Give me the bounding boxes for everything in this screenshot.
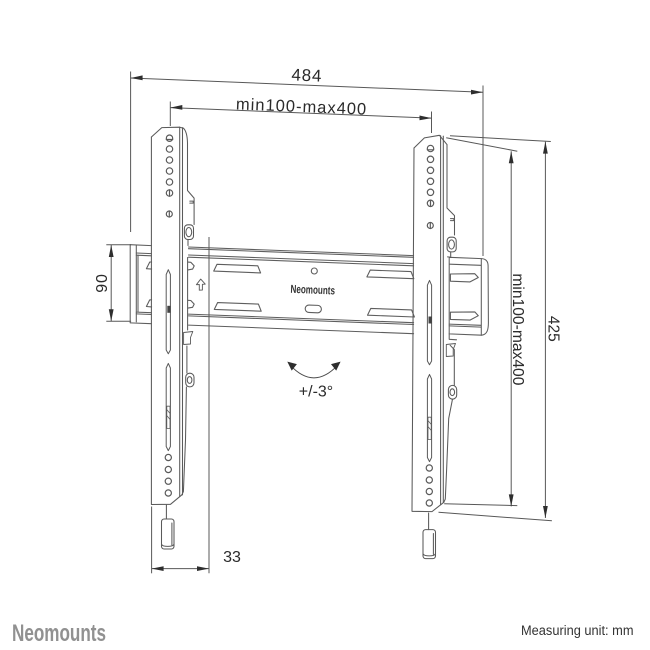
svg-text:33: 33: [223, 549, 241, 566]
svg-text:min100-max400: min100-max400: [509, 273, 526, 385]
svg-text:Neomounts: Neomounts: [290, 284, 335, 298]
svg-text:90: 90: [94, 273, 111, 292]
svg-text:484: 484: [291, 65, 323, 85]
svg-text:Neomounts: Neomounts: [12, 620, 106, 647]
svg-text:Measuring unit: mm: Measuring unit: mm: [521, 623, 634, 638]
svg-text:min100-max400: min100-max400: [236, 95, 368, 118]
svg-text:425: 425: [544, 316, 561, 342]
svg-text:+/-3°: +/-3°: [299, 384, 333, 401]
